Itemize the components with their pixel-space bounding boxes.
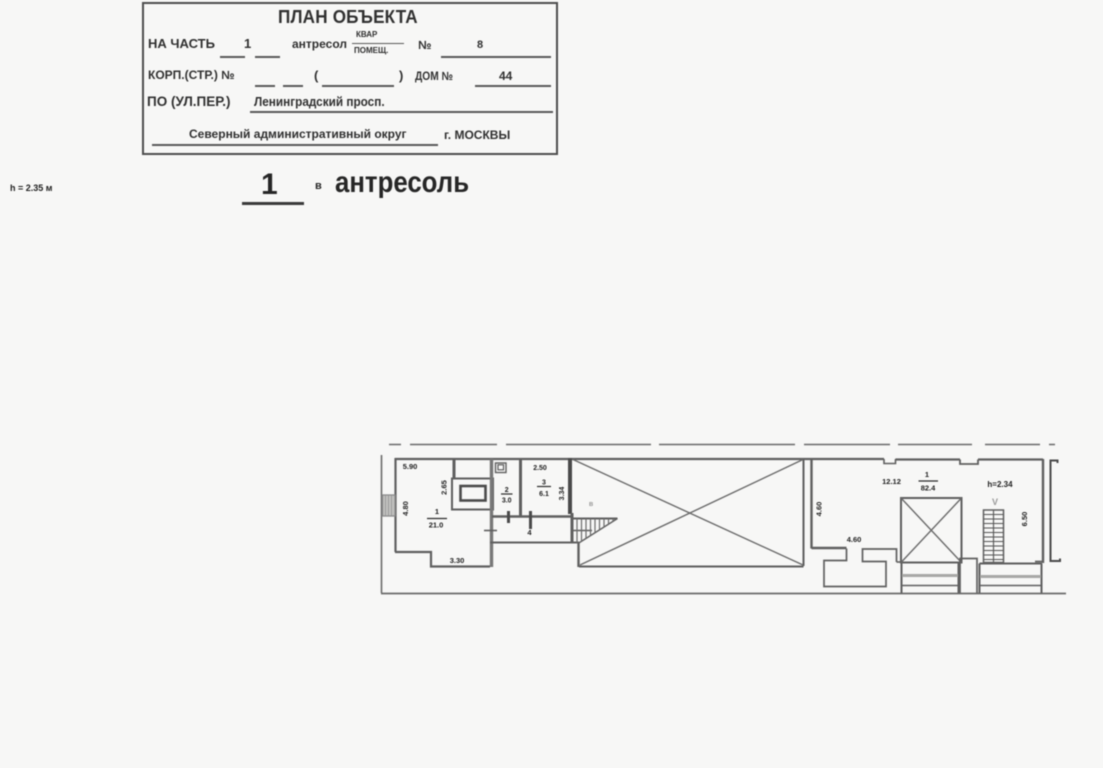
svg-text:12.12: 12.12 <box>882 477 901 486</box>
svg-text:1: 1 <box>925 470 929 479</box>
svg-text:4: 4 <box>527 528 532 537</box>
svg-text:h=2.34: h=2.34 <box>987 480 1013 489</box>
svg-text:6.1: 6.1 <box>539 491 549 498</box>
svg-text:3.0: 3.0 <box>502 498 512 505</box>
svg-text:6.50: 6.50 <box>1020 512 1029 527</box>
svg-text:4.80: 4.80 <box>401 501 410 516</box>
svg-text:V: V <box>992 497 998 507</box>
svg-text:3.34: 3.34 <box>559 487 566 501</box>
svg-text:в: в <box>589 501 594 508</box>
svg-text:1: 1 <box>435 507 439 516</box>
svg-text:82.4: 82.4 <box>921 484 936 493</box>
svg-text:2.65: 2.65 <box>439 480 448 495</box>
svg-text:3: 3 <box>542 480 546 487</box>
svg-text:4.60: 4.60 <box>814 502 823 517</box>
svg-text:5.90: 5.90 <box>403 462 418 471</box>
svg-text:21.0: 21.0 <box>429 521 444 530</box>
svg-text:4.60: 4.60 <box>847 535 862 544</box>
svg-text:3.30: 3.30 <box>450 556 465 565</box>
svg-text:2: 2 <box>505 487 509 494</box>
svg-text:2.50: 2.50 <box>533 465 547 472</box>
